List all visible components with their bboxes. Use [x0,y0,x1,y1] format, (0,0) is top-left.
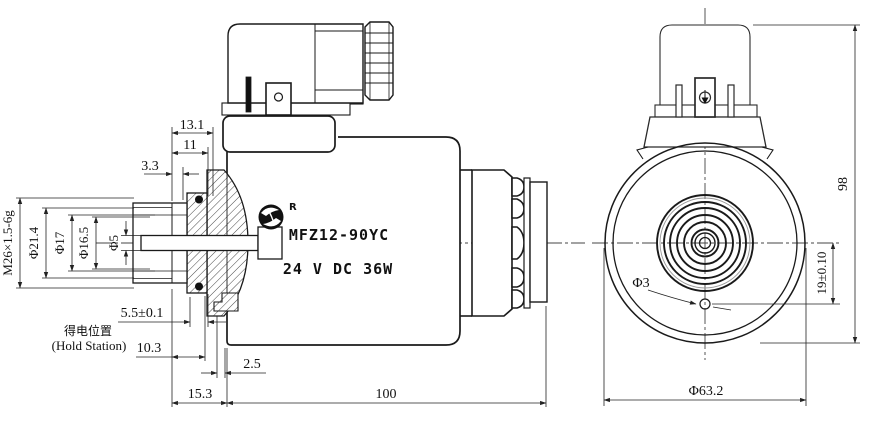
model-text: MFZ12-90YC [289,226,389,244]
dim-dia-63-2: Φ63.2 [689,384,724,399]
plunger-pin [141,236,258,251]
dim-11: 11 [183,138,196,153]
side-body-upper-block [223,116,335,152]
dim-dia-17: Φ17 [52,231,67,254]
dim-15-3: 15.3 [188,387,213,402]
dim-100: 100 [376,387,397,402]
dim-98: 98 [836,177,851,191]
front-tab-left [637,147,648,159]
front-pin-left [676,85,682,117]
dim-13-1: 13.1 [180,118,205,133]
terminal-pin [246,77,251,112]
o-ring-bottom [195,283,203,291]
dim-dia-5: Φ5 [106,235,121,251]
dim-10-3: 10.3 [137,341,162,356]
hold-station-en: (Hold Station) [52,338,127,353]
drawing-sheet: R MFZ12-90YC 24 V DC 36W [0,0,869,428]
hold-station-cn: 得电位置 [64,323,112,338]
side-connector [228,22,393,115]
tab-screw-hole [275,93,283,101]
dim-19: 19±0.10 [814,252,829,295]
dim-thread-label: M26×1.5-6g [0,210,15,276]
dim-3-3: 3.3 [141,159,159,174]
dim-dia-16-5: Φ16.5 [76,227,91,259]
front-pin-right [728,85,734,117]
plunger-collar [258,227,282,259]
front-connector [644,25,766,147]
brand-logo-icon [259,205,284,230]
o-ring-top [195,196,203,204]
dim-5-5: 5.5±0.1 [121,306,164,321]
front-tab-right [762,147,773,159]
dim-dia-3: Φ3 [632,276,649,291]
registered-mark: R [289,202,297,213]
dim-2-5: 2.5 [243,357,261,372]
rating-text: 24 V DC 36W [283,260,393,278]
cable-gland-nut [365,22,393,100]
front-dimension-texts: 98 19±0.10 Φ3 Φ63.2 [632,177,851,399]
side-adjust-knob [460,170,547,316]
solenoid-drawing: R MFZ12-90YC 24 V DC 36W [0,0,869,428]
dim-dia-21-4: Φ21.4 [26,226,41,259]
side-view: R MFZ12-90YC 24 V DC 36W [96,22,585,345]
